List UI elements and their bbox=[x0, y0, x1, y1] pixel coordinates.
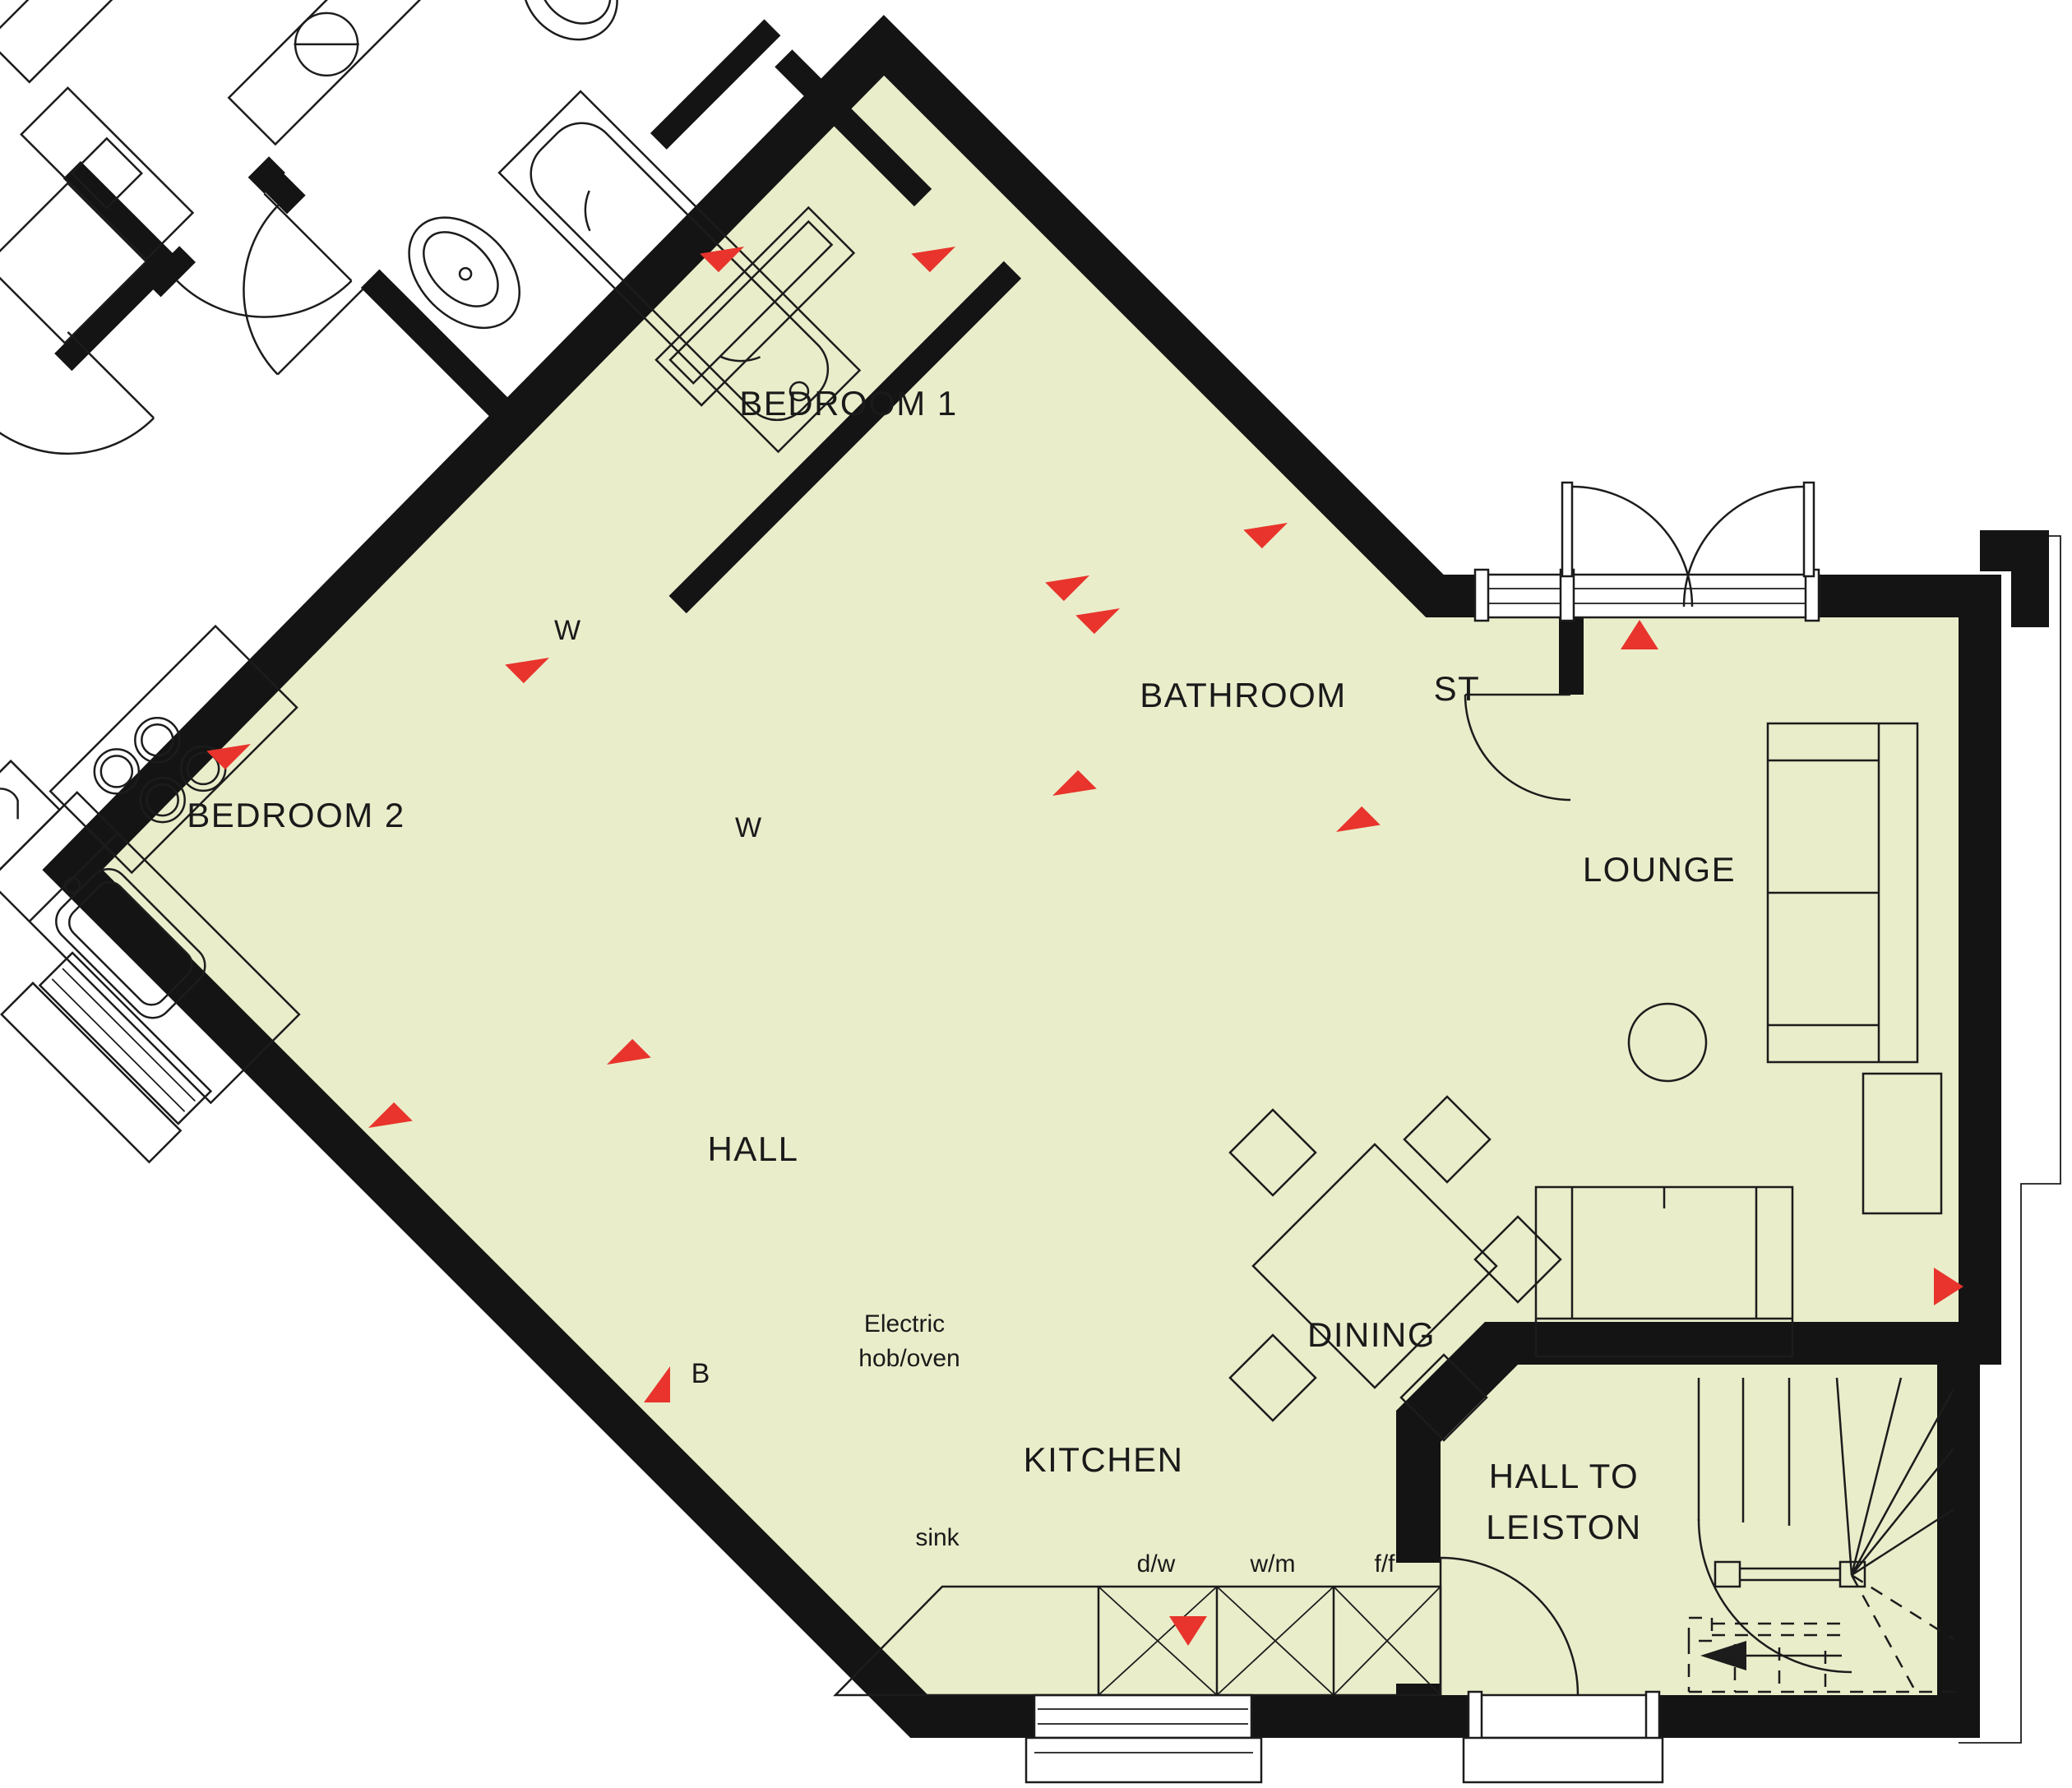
hall-label: HALL bbox=[707, 1130, 798, 1168]
wardrobe1-label: W bbox=[554, 615, 580, 646]
bedroom2-label: BEDROOM 2 bbox=[187, 796, 405, 834]
hob-label-line2: hob/oven bbox=[858, 1345, 960, 1372]
front-door bbox=[1464, 1692, 1663, 1782]
wing-doors bbox=[0, 19, 363, 544]
hall-to-leiston-label-line2: LEISTON bbox=[1486, 1508, 1641, 1546]
bathroom-label: BATHROOM bbox=[1140, 676, 1347, 714]
kitchen-window bbox=[1026, 1695, 1261, 1782]
dining-label: DINING bbox=[1307, 1315, 1436, 1354]
floorplan-page: BEDROOM 1 BEDROOM 2 BATHROOM ST LOUNGE H… bbox=[0, 0, 2072, 1788]
hob-label-line1: Electric bbox=[864, 1310, 945, 1338]
bedroom1-label: BEDROOM 1 bbox=[739, 384, 958, 423]
washing-machine-label: w/m bbox=[1250, 1550, 1296, 1578]
wardrobe2-label: W bbox=[735, 812, 761, 843]
sink-label: sink bbox=[915, 1524, 960, 1551]
hall-to-leiston-label-line1: HALL TO bbox=[1489, 1457, 1639, 1495]
bedroom1-furniture bbox=[0, 0, 446, 275]
kitchen-label: KITCHEN bbox=[1024, 1440, 1184, 1479]
french-doors bbox=[1475, 483, 1819, 621]
floorplan-drawing: BEDROOM 1 BEDROOM 2 BATHROOM ST LOUNGE H… bbox=[0, 0, 2072, 1788]
lounge-label: LOUNGE bbox=[1583, 850, 1736, 889]
storage-label: ST bbox=[1434, 669, 1481, 708]
boiler-label: B bbox=[691, 1358, 710, 1389]
dishwasher-label: d/w bbox=[1137, 1550, 1176, 1578]
fridge-freezer-label: f/f bbox=[1374, 1550, 1395, 1578]
